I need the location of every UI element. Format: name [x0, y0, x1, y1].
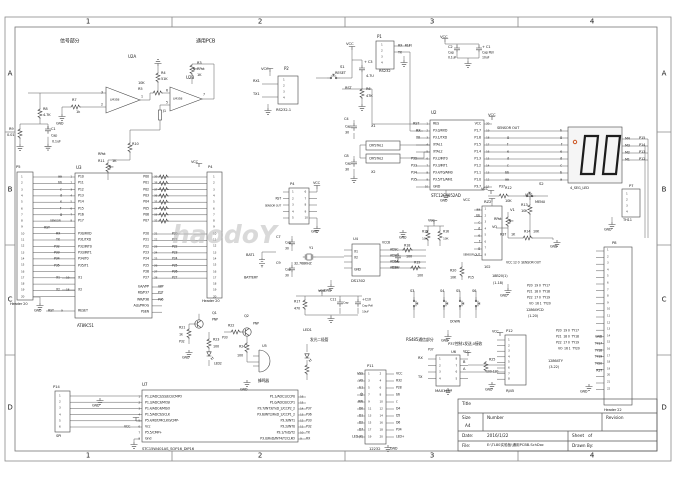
p11-lpin-10: 19	[368, 436, 371, 439]
u3-pr-8: P07	[143, 219, 149, 222]
r11-ref: R11	[98, 160, 105, 164]
num-x1-u3: 19	[66, 277, 69, 280]
u3-rpin-top-2: 38	[154, 182, 157, 185]
tb-file-value: E:\TL80实验板\通用PCBB.SchDoc	[487, 444, 544, 448]
c7-ref: C7	[276, 236, 281, 240]
u2-net-sensor: SENSOR OUT	[497, 127, 519, 131]
p12-pin-5: 5	[508, 361, 510, 364]
u3-pr-1: P00	[143, 175, 149, 178]
tb-file-label: File:	[462, 444, 470, 448]
u2b-pin5: 5	[166, 101, 168, 104]
rz2-net-c: c	[478, 221, 480, 224]
u2-pr-8: P1.1	[474, 171, 481, 174]
r6-val: 47K	[366, 95, 372, 99]
u7-net-p36: P36	[306, 413, 312, 416]
p14-ref: P14	[53, 385, 60, 389]
u2b-ref: U2B	[186, 76, 194, 80]
r17-val: 470	[294, 307, 300, 310]
p11-nr-6: D4	[396, 407, 400, 410]
p8-pin-8: 8	[607, 296, 609, 299]
net-rst-u3: RST	[44, 226, 50, 229]
vcc-caps: VCC	[440, 35, 447, 39]
c4-ref: C4	[344, 118, 349, 122]
p8-pin-16: 16	[607, 349, 610, 352]
seg-net-d: d	[507, 157, 509, 160]
p8-pin-21: 21	[607, 382, 610, 385]
u3-net-p20: P20	[172, 232, 177, 235]
u3-pr-6: P05	[143, 207, 149, 210]
rz2-pin-6: 6	[485, 241, 487, 244]
p8-pin-7: 7	[607, 289, 609, 292]
p5-pin-13: 13	[21, 251, 24, 254]
u2-pl-9: P3.5/T1/AIN1	[433, 178, 453, 181]
c1a-type: Cap	[51, 134, 57, 137]
u3-pl-13: P34/T0	[78, 258, 89, 261]
ann-12864ty-range: (3-22)	[549, 366, 559, 370]
tb-sheet-label: Sheet of	[572, 434, 592, 438]
u7-pl-7: P5.5/CMP+	[145, 431, 162, 434]
tb-revision-label: Revision	[606, 416, 624, 420]
c11-type: Cap	[343, 302, 348, 305]
u7-pl-4: P1.5/ADC5/SCLK	[145, 413, 170, 416]
u7-lpin-6: 6	[138, 426, 140, 429]
p4-pin-8: 8	[213, 220, 215, 223]
c12-type: Cap	[394, 261, 399, 264]
p14-pin-5: 5	[59, 419, 61, 422]
seg-p14: P14	[639, 144, 645, 148]
u2-lpin-5: 5	[426, 151, 428, 154]
crystal1-name: CRYSTAL1	[369, 144, 383, 147]
s5-ref: S5	[456, 290, 460, 294]
p1-ref: P1	[377, 35, 382, 39]
rz2-net-bb: bb	[476, 214, 480, 217]
c9-val: 30	[285, 274, 289, 277]
u2-rpin-9: 12	[486, 179, 489, 182]
u6-lpin-3: 3	[439, 371, 441, 374]
p8-pin-10: 10	[607, 309, 610, 312]
vcc-s1: VCC	[346, 42, 353, 46]
u3-pl-14: P35/T1	[78, 264, 89, 267]
u6-net-b: B	[463, 361, 465, 365]
p4-pin-18: 18	[213, 283, 216, 286]
r13-ref: R13	[521, 204, 528, 208]
p7-ref: P7	[629, 184, 633, 188]
vcc-u2-label: VCC	[488, 113, 495, 117]
p11-rpin-10: 20	[380, 436, 383, 439]
p7-pin-2: 2	[626, 199, 628, 202]
c1b-type: Cap Poll	[482, 51, 494, 54]
vcc-v1-label: VCC	[525, 194, 532, 198]
p12-pin-7: 7	[508, 372, 510, 375]
r19-val: 100	[417, 274, 423, 277]
u3-pl-11: P32/INT0	[78, 245, 92, 248]
r37-val: 1K	[511, 233, 515, 236]
u7-rpin-8: 9	[300, 438, 302, 441]
u7-lpin-7: 7	[138, 432, 140, 435]
zone-left-b: B	[8, 187, 13, 194]
c8-val: 30	[345, 168, 349, 171]
r9-ref: R9	[9, 128, 13, 132]
p5-pin-16: 16	[21, 270, 24, 273]
seg-b: b	[560, 171, 562, 174]
u2-pr-4: P1.5	[474, 143, 481, 146]
seg-e: e	[560, 150, 562, 153]
p8-net-ty20: TY20	[595, 362, 602, 365]
r25-ref: R25	[489, 358, 495, 361]
bat1-ref: BAT1	[246, 254, 255, 258]
led1-ref: LED1	[303, 329, 312, 333]
p11-nr-2: R32	[396, 379, 402, 382]
r20-val: 10K	[450, 276, 456, 279]
p4m-lpin-1: 1	[292, 191, 294, 194]
u2-net-tx: TX	[416, 136, 420, 139]
p12-name: RJ45	[506, 389, 514, 393]
u3-net-p27: P27	[172, 277, 177, 280]
buzzer-name: 蜂鸣器	[258, 379, 269, 383]
net-vccb: VCCB	[382, 241, 390, 244]
u5-ref: U5	[262, 345, 267, 349]
u2-rpin-7: 14	[486, 165, 489, 168]
p8-pin-3: 3	[607, 263, 609, 266]
c9-type: Cap	[285, 268, 291, 271]
p14-pin-6: 6	[59, 426, 61, 429]
q1-type: PNP	[212, 318, 218, 321]
rz2-pin-5: 5	[485, 235, 487, 238]
p4-pin-11: 11	[213, 239, 216, 242]
u3-lpin-6: 6	[70, 207, 72, 210]
gnd-u4-label: GND	[324, 289, 331, 292]
zone-bottom-4: 4	[590, 453, 594, 460]
vcc-p2: VCC	[261, 67, 268, 71]
u7-rpin-3: 14	[300, 408, 303, 411]
p4-pin-7: 7	[213, 213, 215, 216]
u3-pl-8: P17	[78, 219, 84, 222]
c3-ref: + C3	[364, 61, 372, 65]
j1-ref: J1	[163, 110, 166, 114]
u2-lpin-6: 6	[426, 158, 428, 161]
r14-val: 10K	[533, 230, 539, 233]
u3-pl-17: RESET	[78, 309, 88, 312]
p4m-rpin-4: 9	[305, 210, 307, 213]
u3-lpin-8: 8	[70, 220, 72, 223]
c4-type: Cap	[345, 125, 351, 128]
tb-number-label: Number	[487, 416, 504, 420]
p4m-rpin-1: 6	[305, 191, 307, 194]
v1-type: RPot	[494, 218, 502, 222]
s1-label: RESET	[335, 72, 346, 76]
u2-pr-2: P1.7	[474, 129, 481, 132]
u7-ref: U7	[142, 383, 147, 387]
p11-lpin-2: 3	[368, 380, 370, 383]
p5-pin-2: 2	[21, 182, 23, 185]
ann-ty-row4: VO 16 1 TY20	[558, 347, 580, 350]
c11-ref: C11	[330, 298, 336, 301]
p5-pin-20: 20	[21, 295, 24, 298]
u3-rpin-mid-3: 23	[154, 245, 157, 248]
u3-pr-14: P25	[143, 264, 149, 267]
seg-m3: M3	[625, 144, 630, 147]
net-dd: d	[60, 194, 62, 197]
net-aa: aa	[58, 175, 62, 178]
u2-rpin-4: 17	[486, 144, 489, 147]
u7-lpin-3: 3	[138, 408, 140, 411]
p7-name: TH11	[623, 219, 632, 223]
vcc-p4m: VCC	[313, 182, 320, 186]
p11-lpin-7: 13	[368, 415, 371, 418]
u6-rpin-1: 8	[456, 358, 458, 361]
u7-lpin-8: 8	[138, 438, 140, 441]
p12-pin-1: 1	[508, 339, 510, 342]
u2-net-rx: RX	[416, 129, 420, 132]
u7-pl-2: P1.3/ADC3/MOSI	[145, 401, 170, 404]
seg-net-e: e	[507, 150, 509, 153]
r7-ref: R7	[72, 99, 76, 103]
r5-val: 10K	[138, 82, 144, 86]
s2-label: MENU	[535, 201, 545, 205]
u4-net-1: ADSC	[390, 248, 398, 251]
u3-pl-5: P14	[78, 201, 84, 204]
u2-pl-10: GND	[433, 185, 440, 188]
u2-pl-7: P3.3/INT1	[433, 164, 448, 167]
net-rst: RST	[345, 87, 352, 91]
u3-rpin-mid-1: 21	[154, 233, 157, 236]
r11-type: RPot	[98, 153, 106, 157]
seg-p12: P12	[639, 158, 645, 162]
label-layer: 12341234ABCDABCD信号部分通用PCBRS485通信部分P37控制1…	[0, 0, 680, 480]
p5-pin-12: 12	[21, 245, 24, 248]
seg-f: f	[561, 143, 562, 146]
u3-pl-1: P10	[78, 175, 84, 178]
p11-rpin-5: 10	[380, 401, 383, 404]
u3-pr-21: PSEN	[141, 311, 149, 314]
u2-lpin-4: 4	[426, 144, 428, 147]
p1-net-tx: TX	[398, 51, 402, 54]
u3-net-p25: P25	[172, 264, 177, 267]
u3-pl-15: X1	[78, 276, 82, 279]
p7-pin-4: 4	[626, 211, 628, 214]
p4m-lpin-5: 5	[292, 217, 294, 220]
u3-pr-20: ALE/PROG	[133, 304, 149, 307]
p5-pin-8: 8	[21, 220, 23, 223]
u7-pr-4: P3.6/INT2/RxD_2/CCP1_2	[257, 413, 295, 416]
u3-lpin-2: 2	[70, 182, 72, 185]
p8-pin-17: 17	[607, 355, 610, 358]
seg-net-aa: aa	[505, 178, 509, 181]
u3-rpin-mid-6: 26	[154, 264, 157, 267]
seg-d: d	[560, 157, 562, 160]
u7-rpin-2: 15	[300, 402, 303, 405]
u2-rpin-5: 16	[486, 151, 489, 154]
net-p33q: P33	[222, 336, 228, 339]
u7-rpin-1: 16	[300, 396, 303, 399]
p4m-rpin-2: 7	[305, 197, 307, 200]
u2-pl-4: XTAL1	[433, 143, 442, 146]
seg-c: c	[560, 164, 562, 167]
u2-pl-1: RES	[433, 122, 439, 125]
r17-ref: R17	[294, 300, 300, 303]
r20-ref: R20	[450, 269, 456, 272]
p4-pin-5: 5	[213, 201, 215, 204]
c1a-ref: C1	[51, 128, 56, 132]
r6-ref: R6	[366, 88, 370, 92]
u2-pr-7: P1.2	[474, 164, 481, 167]
r13-val: 10K	[521, 210, 527, 214]
note-p37: P37控制1发送,0接收	[448, 342, 482, 346]
p4m-rpin-5: 10	[305, 217, 308, 220]
vcc-pf: VCC	[318, 290, 325, 294]
c10-ref: +C10	[362, 298, 371, 301]
tb-date-label: Date:	[462, 434, 473, 438]
p11-nr-5: c	[396, 400, 398, 403]
net-rx-u3: RX	[56, 232, 60, 235]
tb-drawn-label: Drawn By:	[572, 444, 593, 448]
u2-lpin-9: 9	[426, 179, 428, 182]
u2-lpin-8: 8	[426, 172, 428, 175]
net-rst9: RST	[48, 309, 54, 312]
p4m-net-sensor: SENSOR OUT	[265, 205, 281, 208]
s1-ref: S1	[340, 65, 345, 69]
net-p15b: P15	[468, 276, 474, 279]
p11-ref: P11	[367, 364, 374, 368]
gnd-p8-label: GND	[580, 390, 587, 393]
net-sen: SENSOR	[50, 220, 61, 223]
r16-ref: R16	[443, 230, 449, 233]
u3-lpin-1: 1	[70, 176, 72, 179]
s4-ref: S4	[440, 290, 444, 294]
u6-rpin-3: 6	[456, 371, 458, 374]
r18-ref: R18	[404, 244, 410, 247]
u7-rpin-5: 12	[300, 420, 303, 423]
u2-lpin-3: 3	[426, 137, 428, 140]
c8-type: Cap	[345, 162, 351, 165]
p11-lpin-4: 7	[368, 394, 370, 397]
net-p32-u3: P32	[54, 245, 60, 248]
zone-top-2: 2	[258, 19, 262, 26]
u2-rpin-1: 20	[486, 123, 489, 126]
p11-lpin-6: 11	[368, 408, 371, 411]
rz2-pin-8: 8	[485, 254, 487, 257]
net-vpp: VPP	[158, 285, 163, 288]
u7-pl-3: P1.4/ADC4/MISO	[145, 407, 170, 410]
seg-g: g	[560, 136, 562, 139]
q1-ref: Q1	[212, 312, 217, 316]
gnd-r7-label: GND	[56, 122, 63, 125]
p11-rpin-1: 2	[380, 373, 382, 376]
u3-pl-2: P11	[78, 182, 84, 185]
gnd-18b20-label: GND	[500, 294, 507, 297]
p11-nl-1: VSS	[357, 372, 363, 375]
zone-bottom-2: 2	[258, 453, 262, 460]
net-p37b: P37	[158, 292, 163, 295]
u3-rpin-mid-2: 22	[154, 239, 157, 242]
net-x2: X2	[371, 171, 375, 175]
u6-net-rx: RX	[418, 357, 423, 361]
u2a-pin3: 3	[101, 91, 103, 94]
gnd-rs485-label: GND	[441, 339, 448, 342]
u3-rpin-top-4: 36	[154, 194, 157, 197]
gnd-p5-label: GND	[34, 309, 41, 312]
p2-pin-4: 4	[283, 97, 285, 100]
p8-pin-6: 6	[607, 283, 609, 286]
p11-rpin-8: 16	[380, 422, 383, 425]
u7-net-p33: P33	[306, 419, 312, 422]
c10-type: Cap Poll	[362, 305, 373, 308]
u4-pin-x2: X2	[354, 256, 358, 259]
net-ff: f	[60, 207, 61, 210]
u7-pr-1: P1.1/ADC1/CCP0	[270, 395, 295, 398]
u3-net-p21: P21	[172, 239, 177, 242]
p11-rpin-4: 8	[380, 394, 382, 397]
u2-pr-6: P1.3	[474, 157, 481, 160]
p1-pin-3: 3	[381, 56, 383, 59]
vcc-p4-label: VCC	[191, 161, 198, 165]
r12-val: 10K	[505, 200, 511, 204]
u7-net-p32: P32	[306, 425, 312, 428]
p11-nr-9: P34	[396, 428, 402, 431]
u2-pr-5: P1.4	[474, 150, 481, 153]
p11-name: 12232	[369, 447, 380, 451]
p5-pin-11: 11	[21, 239, 24, 242]
zone-left-a: A	[8, 71, 13, 78]
rz2-val: 102	[484, 266, 490, 270]
u2-rpin-8: 13	[486, 172, 489, 175]
p4-pin-6: 6	[213, 207, 215, 210]
r12-ref: R12	[505, 187, 512, 191]
p8-ref: P8	[612, 241, 616, 245]
seg-p15: P15	[639, 137, 645, 141]
u2-pl-2: P3.0/RXD	[433, 129, 447, 132]
c9-ref: C9	[276, 262, 281, 266]
rz2-net-e: e	[478, 234, 480, 237]
u3-pr-17: EA/VPP	[138, 285, 149, 288]
vcc-p12-label: VCC	[492, 330, 499, 333]
u6-lpin-2: 2	[439, 364, 441, 367]
u6-rpin-2: 7	[456, 364, 458, 367]
zone-top-1: 1	[86, 19, 90, 26]
u3-pr-16: P27	[143, 276, 149, 279]
r21-val: 1k	[179, 333, 183, 336]
u2b-pin6: 6	[166, 89, 168, 92]
u3-pl-12: P33/INT1	[78, 251, 92, 254]
p12-pin-2: 2	[508, 344, 510, 347]
r23-ref: R23	[213, 338, 219, 341]
u2-rpin-2: 19	[486, 130, 489, 133]
p11-nr-4: b6	[396, 393, 400, 396]
gnd-p12-label: GND	[485, 388, 492, 391]
zone-right-a: A	[662, 71, 667, 78]
u3-pr-10: P21	[143, 239, 149, 242]
p14-pin-2: 2	[59, 401, 61, 404]
r16-val: 10K	[443, 238, 448, 241]
r5-ref: R5	[138, 88, 142, 92]
p12-ref: P12	[506, 329, 513, 333]
r7-val: 1k	[76, 111, 80, 115]
p5-name: Header 20	[10, 303, 27, 307]
u2-ref: U2	[431, 111, 436, 115]
u7-pl-6: Vcc	[145, 425, 150, 428]
u3-pr-12: P23	[143, 251, 149, 254]
c12-val: 0.1uF	[392, 267, 400, 270]
p14-pin-4: 4	[59, 413, 61, 416]
led1-name: 发光二极管	[310, 338, 328, 342]
u7-net-rx: RX	[306, 437, 310, 440]
u6-net-a: A	[463, 368, 465, 372]
p1-pin-4: 4	[381, 62, 383, 65]
q2-type: PNP	[253, 322, 259, 325]
p5-pin-10: 10	[21, 232, 24, 235]
p4-name: Header 20	[202, 300, 219, 304]
ann-ty-row3: P22 17 0 TY19	[556, 341, 579, 344]
